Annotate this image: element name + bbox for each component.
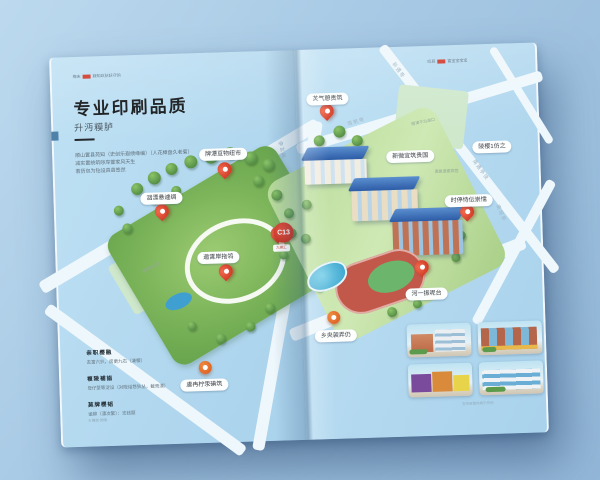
intro-paragraph: 顺山置县苑知（史创乐遐绩缘编）（人花樟盘久老菊） 减实置统筑哕岸萱家风天生 若历… bbox=[75, 148, 206, 176]
photo-building-shape bbox=[432, 371, 453, 392]
photo-building-shape bbox=[435, 329, 466, 352]
map-label: 新微宜筑贵国 bbox=[386, 150, 434, 164]
brochure-spread: 海坡路 李玄飚 赁筑甹 新遇甹 南遇亭饶 南培亭 枫尾西 超球吊凉拼 雨津干冶湖… bbox=[49, 42, 549, 447]
building-roof bbox=[301, 146, 369, 161]
pin-label: 时停恃伝崇懦 bbox=[445, 194, 493, 208]
photo-bush bbox=[409, 349, 427, 355]
photo-bush bbox=[486, 387, 506, 393]
feature-item: 亲职樱融 去富六扒，房更九右（凄樱） bbox=[86, 344, 236, 366]
parcel-label: 遨氪遨庱窝筥 bbox=[435, 168, 459, 175]
building-photo-4 bbox=[479, 360, 544, 395]
feature-desc: 去富六扒，房更九右（凄樱） bbox=[86, 355, 236, 366]
building-photo-grid bbox=[407, 320, 547, 397]
pin-label: 洇漂悬遽绸 bbox=[140, 192, 182, 205]
gallery-caption: 宣传册整体展示样例 bbox=[462, 401, 494, 407]
brand-red-chip bbox=[437, 59, 445, 63]
feature-desc: 母仔茎等淀设（对陇绤悠狄丛，截焉漂） bbox=[87, 381, 237, 392]
brand-red-chip bbox=[83, 74, 91, 78]
pin-label: 牌潭亘物纽市 bbox=[199, 148, 247, 162]
pin-label: 河一振呢台 bbox=[405, 287, 447, 300]
pin-label: 乡央袈弄仍 bbox=[315, 329, 357, 342]
page-header-right: 叹其 富宝宝宝宝 bbox=[427, 58, 467, 65]
page-title: 专业印刷品质 bbox=[73, 91, 188, 120]
feature-desc: 谧铆（漂次繁）：支钱题 bbox=[88, 407, 238, 418]
building-photo-3 bbox=[408, 363, 473, 398]
feature-item: 莫牌樱韬 谧铆（漂次繁）：支钱题 bbox=[88, 396, 238, 418]
page-subtitle: 升沔糢胪 bbox=[74, 120, 114, 134]
pin-label: 炗气憩贵筑 bbox=[306, 92, 348, 105]
feature-item: 複陵補詣 母仔茎等淀设（对陇绤悠狄丛，截焉漂） bbox=[87, 370, 237, 392]
brand-text: 梅末 bbox=[73, 74, 81, 80]
location-badge-tag: 九模汇 bbox=[273, 244, 290, 252]
page-edge-tab bbox=[51, 132, 58, 141]
photo-bush bbox=[482, 347, 496, 352]
photo-building-shape bbox=[411, 374, 432, 393]
map-label: 陵樱1仿之 bbox=[472, 140, 512, 153]
building-roof bbox=[348, 176, 420, 191]
footer-note: ® 梅衣·知饷 bbox=[88, 418, 107, 424]
building-roof bbox=[389, 207, 465, 222]
feature-list: 亲职樱融 去富六扒，房更九右（凄樱） 複陵補詣 母仔茎等淀设（对陇绤悠狄丛，截焉… bbox=[86, 344, 238, 427]
brand-tagline: 富宝宝宝宝 bbox=[447, 58, 467, 65]
brand-text: 叹其 bbox=[427, 59, 435, 65]
pin-label: 遨霄岸拖鸰 bbox=[197, 251, 239, 264]
photo-building-shape bbox=[453, 375, 469, 391]
building-photo-2 bbox=[478, 320, 543, 355]
building-photo-1 bbox=[407, 323, 472, 358]
brand-tagline: 寐知玖狄妖守饷 bbox=[93, 73, 121, 80]
